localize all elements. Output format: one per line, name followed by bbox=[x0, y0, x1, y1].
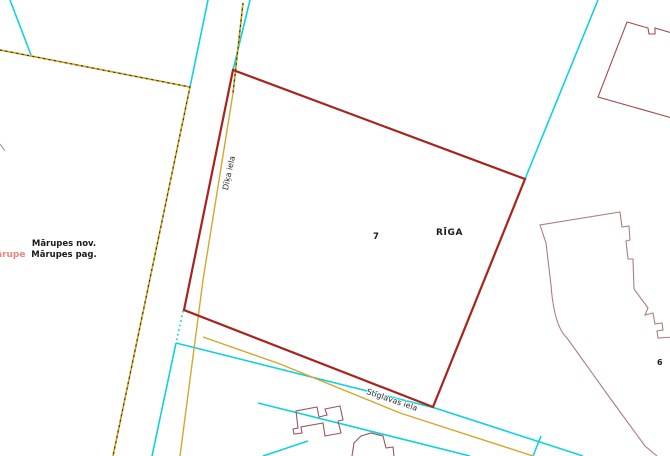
subject-parcel-outline[interactable] bbox=[184, 70, 525, 407]
municipality-label-line2: Mārupes pag. bbox=[18, 250, 110, 261]
place-name-label: ārupe bbox=[0, 250, 25, 260]
cadastre-line-right-diagonal bbox=[525, 0, 598, 179]
building-top-right-outline bbox=[598, 22, 670, 118]
subject-parcel-number: 7 bbox=[373, 232, 379, 242]
cadastre-line-southwest bbox=[152, 343, 176, 456]
municipality-label-line1: Mārupes nov. bbox=[18, 239, 110, 250]
city-label: RĪGA bbox=[436, 228, 463, 238]
street-south-cadastre-line bbox=[258, 403, 470, 456]
map-vector-layer bbox=[0, 0, 670, 456]
adjacent-parcel-number: 6 bbox=[657, 358, 663, 367]
cadastre-dotted-connector bbox=[176, 311, 183, 343]
building-house-2-outline bbox=[352, 433, 394, 456]
cadastre-stub-bottom-left bbox=[263, 441, 308, 456]
edge-tick-line bbox=[0, 144, 5, 151]
vertical-road-centerline bbox=[180, 93, 233, 456]
cadastre-stub-bottom-right bbox=[533, 436, 541, 456]
map-canvas[interactable]: Mārupes nov. Mārupes pag. ārupe RĪGA 7 6… bbox=[0, 0, 670, 456]
municipality-label: Mārupes nov. Mārupes pag. bbox=[18, 239, 110, 261]
cadastre-line-topleft bbox=[10, 0, 31, 55]
building-house-1-outline bbox=[293, 406, 343, 436]
parcel-6-outline bbox=[540, 212, 670, 456]
road-west-cadastre-line bbox=[190, 0, 208, 87]
